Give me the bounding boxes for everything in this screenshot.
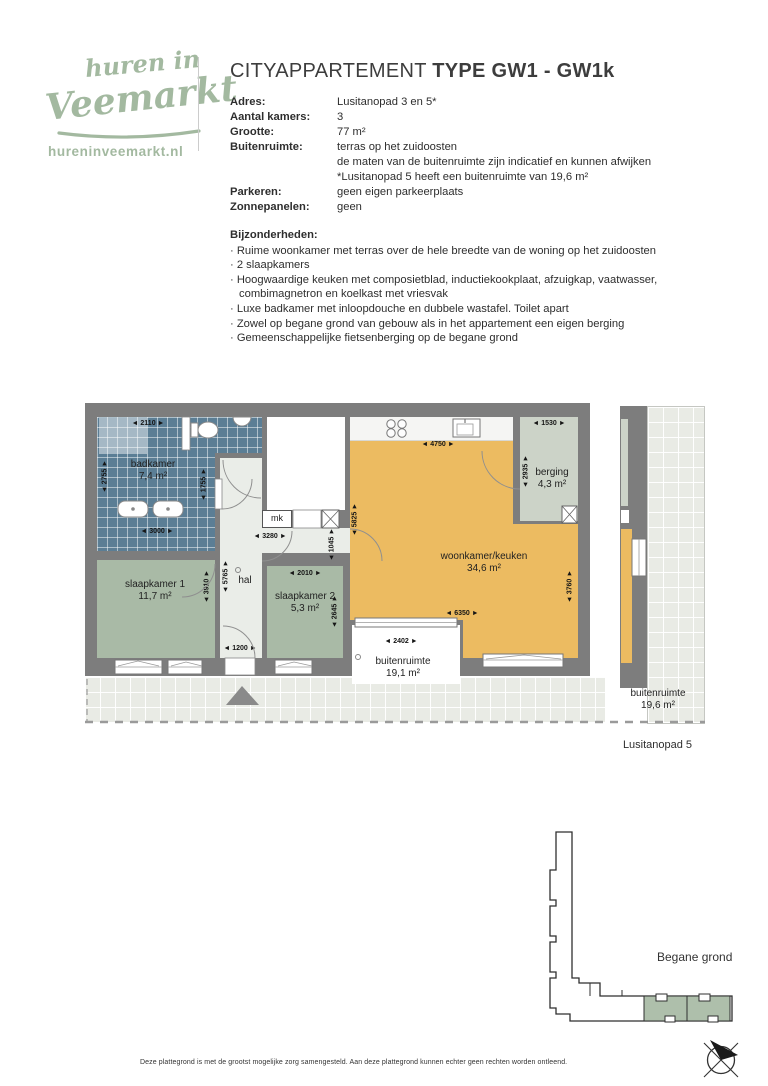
label-badkamer: badkamer 7,4 m²	[103, 459, 203, 483]
features-section: Bijzonderheden: Ruime woonkamer met terr…	[230, 228, 730, 346]
dim-3760: ◄ 3760 ►	[567, 559, 574, 615]
page-title: CITYAPPARTEMENT TYPE GW1 - GW1k	[230, 60, 615, 83]
feature-item: Luxe badkamer met inloopdouche en dubbel…	[230, 302, 730, 317]
label-slaapkamer-2: slaapkamer 2 5,3 m²	[255, 591, 355, 615]
terrace-tiles	[85, 677, 605, 723]
floorplan-document: huren in Veemarkt hureninveemarkt.nl CIT…	[0, 0, 768, 1086]
neighbour-berging-sliver	[621, 419, 628, 506]
label-hal: hal	[223, 575, 267, 587]
title-bold: TYPE GW1 - GW1k	[432, 60, 614, 82]
dim-4750: ◄ 4750 ►	[410, 441, 466, 448]
feature-item: 2 slaapkamers	[230, 258, 730, 273]
label-slaapkamer-1: slaapkamer 1 11,7 m²	[95, 579, 215, 603]
dim-2110: ◄ 2110 ►	[120, 420, 176, 427]
room-woonkamer-lower	[463, 620, 578, 658]
room-buitenruimte-2	[647, 406, 705, 724]
logo-script-line2: Veemarkt	[44, 70, 239, 126]
logo-website-link[interactable]: hureninveemarkt.nl	[48, 144, 183, 159]
title-regular: CITYAPPARTEMENT	[230, 60, 426, 82]
detail-row-grootte: Grootte: 77 m²	[230, 125, 651, 140]
logo-swoosh-icon	[53, 128, 203, 142]
label-begane-grond: Begane grond	[657, 950, 732, 964]
label-lusitanopad: Lusitanopad 5	[605, 739, 710, 751]
dim-3280: ◄ 3280 ►	[242, 533, 298, 540]
property-details: Adres: Lusitanopad 3 en 5* Aantal kamers…	[230, 95, 651, 215]
dim-3000: ◄ 3000 ►	[129, 528, 185, 535]
feature-item: Hoogwaardige keuken met composietblad, i…	[230, 273, 730, 302]
dim-2010: ◄ 2010 ►	[277, 570, 333, 577]
neighbour-wall-notch	[621, 510, 629, 523]
dim-2645: ◄ 2645 ►	[332, 584, 339, 640]
site-minimap: Begane grond	[532, 828, 767, 1040]
feature-item: Zowel op begane grond van gebouw als in …	[230, 317, 730, 332]
detail-row-adres: Adres: Lusitanopad 3 en 5*	[230, 95, 651, 110]
dim-5765: ◄ 5765 ►	[223, 549, 230, 605]
building-outline-icon	[532, 828, 767, 1033]
hal-passage	[262, 528, 350, 553]
stairwell-void	[267, 417, 345, 510]
detail-row-zonnepanelen: Zonnepanelen: geen	[230, 200, 651, 215]
neighbour-room-sliver	[621, 529, 632, 663]
floor-plan: mk badkamer 7,4 m² slaapkamer 1 11,7 m² …	[85, 403, 725, 768]
dim-6350: ◄ 6350 ►	[434, 610, 490, 617]
dim-3910: ◄ 3910 ►	[204, 559, 211, 615]
detail-row-parkeren: Parkeren: geen eigen parkeerplaats	[230, 185, 651, 200]
label-buitenruimte-1: buitenruimte 19,1 m²	[353, 656, 453, 680]
dim-2755: ◄ 2755 ►	[102, 449, 109, 505]
dim-1755: ◄ 1755 ►	[201, 457, 208, 513]
disclaimer-text: Deze plattegrond is met de grootst mogel…	[140, 1059, 567, 1066]
detail-row-buitenruimte-note1: de maten van de buitenruimte zijn indica…	[230, 155, 651, 170]
dim-5825: ◄ 5825 ►	[352, 492, 359, 548]
dim-2402: ◄ 2402 ►	[373, 638, 429, 645]
dim-1530: ◄ 1530 ►	[521, 420, 577, 427]
detail-row-buitenruimte-note2: *Lusitanopad 5 heeft een buitenruimte va…	[230, 170, 651, 185]
room-slaapkamer-1	[97, 560, 215, 658]
features-heading: Bijzonderheden:	[230, 228, 730, 243]
dim-2935: ◄ 2935 ►	[523, 444, 530, 500]
dim-1045: ◄ 1045 ►	[329, 517, 336, 573]
detail-row-kamers: Aantal kamers: 3	[230, 110, 651, 125]
meterkast: mk	[262, 510, 292, 528]
logo: huren in Veemarkt hureninveemarkt.nl	[45, 44, 210, 164]
compass-north-icon	[695, 1034, 747, 1082]
header-divider	[198, 57, 199, 151]
detail-row-buitenruimte: Buitenruimte: terras op het zuidoosten	[230, 140, 651, 155]
label-buitenruimte-2: buitenruimte 19,6 m²	[608, 688, 708, 712]
feature-item: Gemeenschappelijke fietsenberging op de …	[230, 331, 730, 346]
dim-1200: ◄ 1200 ►	[212, 645, 268, 652]
feature-item: Ruime woonkamer met terras over de hele …	[230, 244, 730, 259]
label-woonkamer: woonkamer/keuken 34,6 m²	[414, 551, 554, 575]
dim-3236: ◄ 3236 ►	[495, 654, 551, 661]
features-list: Ruime woonkamer met terras over de hele …	[230, 244, 730, 346]
kitchen-counter	[350, 417, 513, 441]
